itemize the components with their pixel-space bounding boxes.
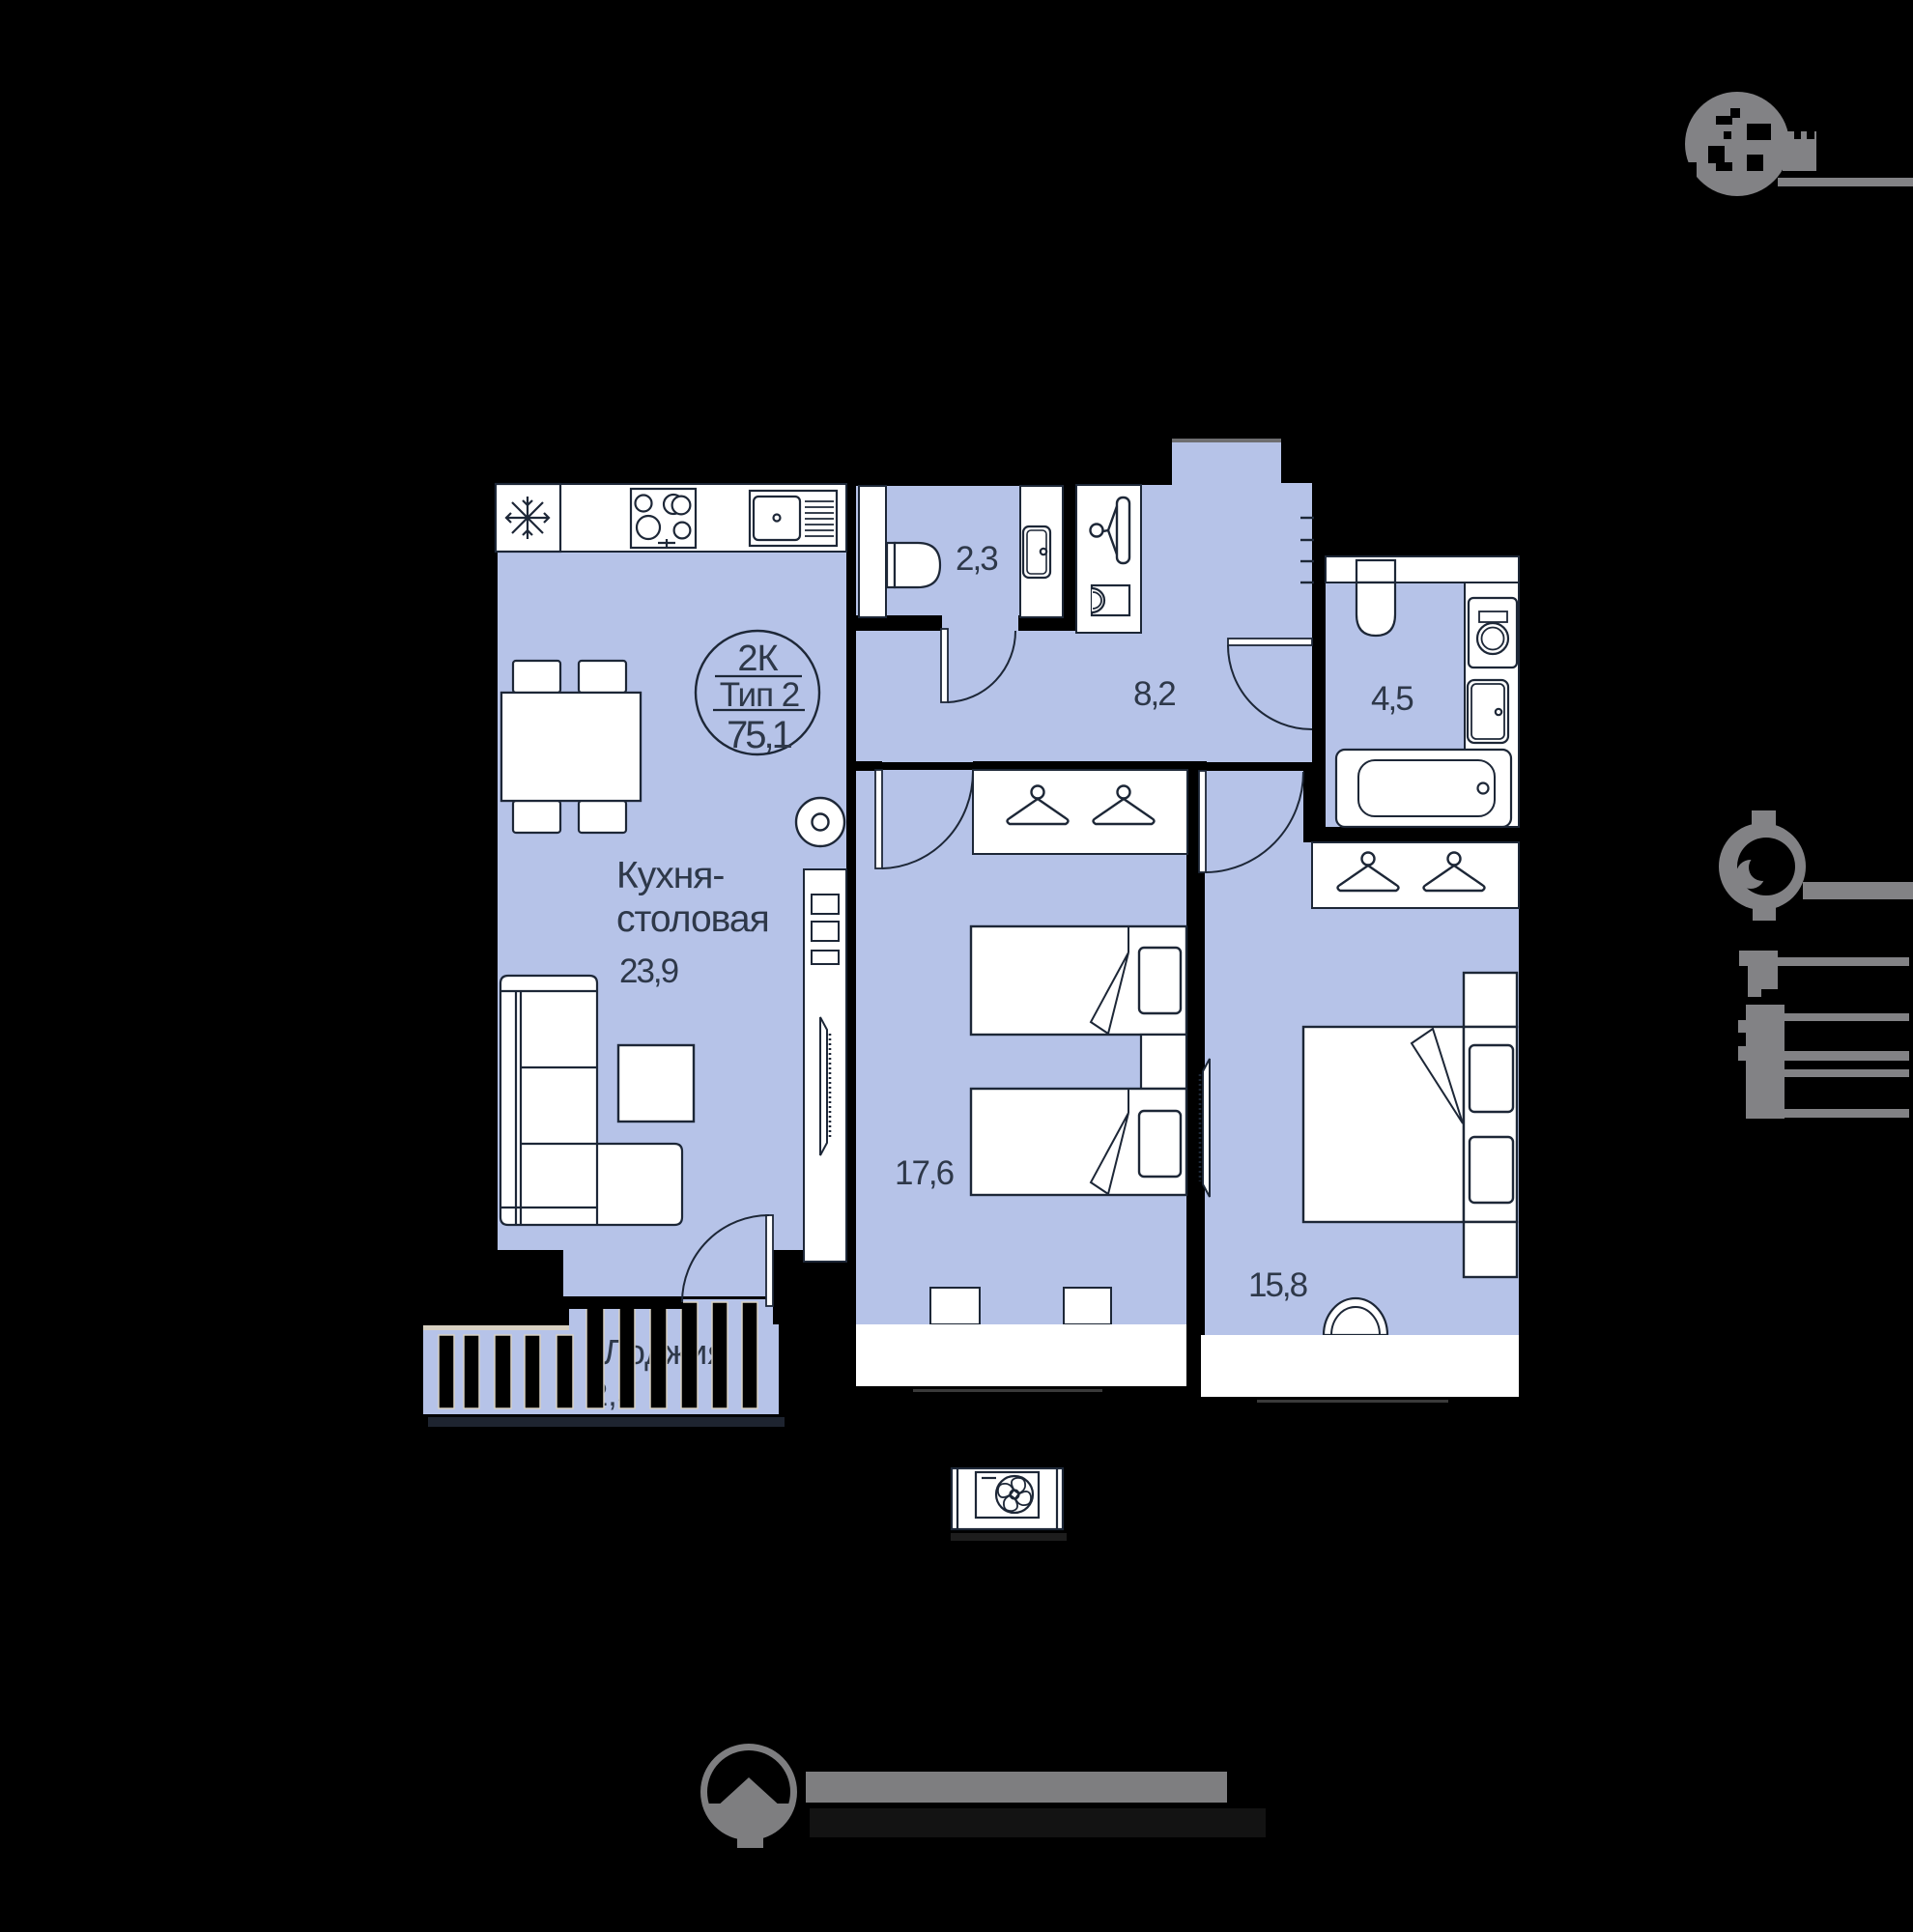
svg-text:4,5: 4,5 xyxy=(1371,680,1413,718)
svg-text:2К: 2К xyxy=(737,639,778,679)
svg-text:Кухня-: Кухня- xyxy=(616,855,724,896)
svg-text:17,6: 17,6 xyxy=(895,1154,954,1192)
svg-text:Тип 2: Тип 2 xyxy=(720,676,800,714)
svg-text:23,9: 23,9 xyxy=(619,952,678,990)
svg-text:15,8: 15,8 xyxy=(1248,1266,1307,1304)
svg-text:2,3: 2,3 xyxy=(956,540,997,578)
svg-text:8,2: 8,2 xyxy=(1133,675,1175,713)
svg-text:75,1: 75,1 xyxy=(727,714,792,756)
svg-text:столовая: столовая xyxy=(616,898,769,940)
